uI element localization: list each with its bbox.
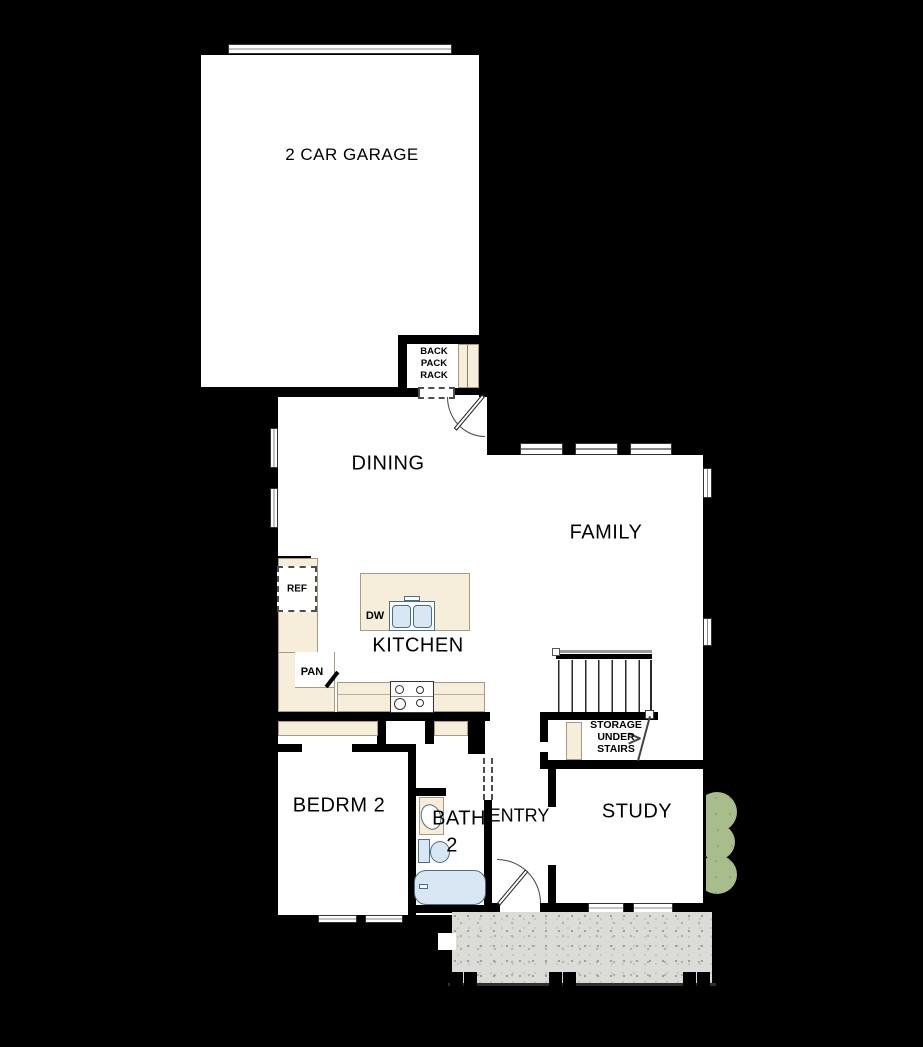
backpack-rack-cabinet: [458, 344, 479, 388]
family-side-window: [703, 468, 712, 498]
hall-builtin-right: [434, 721, 468, 736]
left-wall-b: [270, 468, 278, 488]
family-window-3: [630, 443, 672, 455]
room-label-study: STUDY: [602, 801, 672, 824]
label-refrigerator: REF: [287, 584, 307, 595]
right-wall-a: [703, 443, 712, 468]
sink-basin-right: [413, 605, 432, 628]
porch-post-5: [683, 972, 696, 986]
room-label-bedroom2: BEDRM 2: [293, 795, 385, 818]
hall-niche-stub-left: [377, 721, 386, 744]
stair-side-window: [703, 618, 712, 646]
bedroom-window-2: [365, 915, 403, 923]
room-label-bath2-number: 2: [446, 835, 458, 858]
porch-post-4: [563, 972, 576, 986]
left-wall-a: [270, 388, 278, 428]
porch-post-2: [464, 972, 477, 986]
porch-edge: [448, 983, 716, 986]
family-wall-mullion-1: [563, 443, 575, 455]
porch-step: [438, 933, 456, 950]
rack-divider-line: [467, 345, 468, 387]
room-label-kitchen: KITCHEN: [372, 635, 463, 658]
room-label-garage: 2 CAR GARAGE: [285, 145, 419, 165]
bedroom-wall-mullion: [357, 915, 365, 923]
kitchen-wall-bottom: [270, 712, 490, 721]
stair-rail-line: [556, 650, 652, 653]
bedroom-wall-top-b: [352, 744, 416, 752]
label-storage-under-stairs: STORAGE UNDER STAIRS: [590, 719, 642, 755]
family-wall-mullion-2: [618, 443, 630, 455]
entry-study-wall-upper: [548, 769, 556, 807]
hall-corner-block: [468, 712, 485, 754]
porch-post-6: [697, 972, 710, 986]
shrub-lobe-bottom: [706, 855, 737, 894]
family-window-2: [575, 443, 618, 455]
storage-shelf: [566, 722, 582, 760]
bedroom-window-1: [318, 915, 357, 923]
label-backpack-line1: BACK: [420, 346, 447, 358]
label-backpack-rack: BACK PACK RACK: [420, 346, 447, 382]
entry-study-wall-lower: [548, 865, 556, 907]
label-backpack-line3: RACK: [420, 370, 447, 382]
room-label-family: FAMILY: [570, 522, 643, 545]
label-dishwasher: DW: [366, 610, 384, 622]
stairs: [558, 660, 652, 713]
tub-faucet: [419, 884, 428, 889]
hall-builtin-left: [278, 721, 378, 736]
floor-plan: 2 CAR GARAGE DINING FAMILY KITCHEN BEDRM…: [0, 0, 923, 1047]
label-pantry: PAN: [301, 666, 323, 678]
shrub: [706, 792, 740, 894]
dining-wall-top: [270, 388, 418, 397]
front-porch: [452, 912, 712, 984]
family-window-1: [520, 443, 563, 455]
porch-post-1: [450, 972, 463, 986]
bedroom-wall-bottom-a: [270, 915, 318, 923]
toilet-tank: [418, 839, 430, 863]
stair-rail: [556, 654, 652, 659]
label-storage-line1: STORAGE: [590, 719, 642, 731]
storage-wall-left-a: [540, 712, 548, 742]
room-label-entry: ENTRY: [489, 806, 550, 827]
cased-opening-entry: [483, 758, 493, 800]
room-label-dining: DINING: [352, 453, 425, 476]
burner-top-right: [416, 686, 424, 694]
dining-window-1: [270, 428, 278, 468]
burner-bottom-left: [394, 698, 406, 710]
stair-rail-cap: [552, 648, 560, 656]
porch-post-3: [549, 972, 562, 986]
family-wall-top-a: [487, 443, 520, 455]
bedroom-wall-bottom-b: [403, 915, 416, 923]
range-mid-line: [391, 696, 433, 697]
dining-window-2: [270, 488, 278, 528]
alcove-wall-top: [398, 335, 487, 344]
bedroom-wall-top-a: [270, 744, 302, 752]
label-storage-line3: STAIRS: [590, 743, 642, 755]
garage-wall-right: [479, 47, 487, 397]
room-label-bath2: BATH: [432, 808, 486, 831]
sink-faucet: [404, 596, 420, 601]
study-storage-wall: [540, 760, 712, 769]
label-backpack-line2: PACK: [420, 358, 447, 370]
garage-wall-left: [193, 47, 201, 395]
sink-basin-left: [392, 605, 411, 628]
label-storage-line2: UNDER: [590, 731, 642, 743]
bath-wall-top: [416, 788, 446, 796]
hall-niche-stub-right: [425, 721, 434, 744]
garage-door: [228, 44, 452, 54]
burner-top-left: [395, 685, 404, 694]
burner-bottom-right: [416, 699, 424, 707]
right-wall-b: [703, 498, 712, 618]
